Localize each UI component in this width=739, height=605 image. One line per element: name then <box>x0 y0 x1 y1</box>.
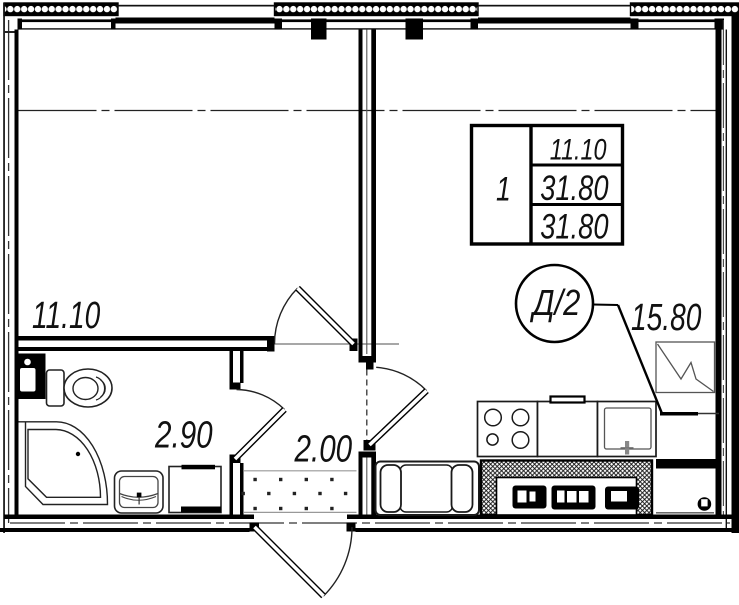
svg-text:2.00: 2.00 <box>294 428 353 470</box>
svg-text:15.80: 15.80 <box>631 297 702 339</box>
svg-text:1: 1 <box>496 170 511 208</box>
svg-text:11.10: 11.10 <box>32 295 101 337</box>
svg-text:11.10: 11.10 <box>550 133 607 166</box>
svg-text:31.80: 31.80 <box>540 207 609 246</box>
svg-text:Д/2: Д/2 <box>529 284 581 324</box>
svg-text:2.90: 2.90 <box>154 414 213 456</box>
svg-text:31.80: 31.80 <box>540 169 609 208</box>
